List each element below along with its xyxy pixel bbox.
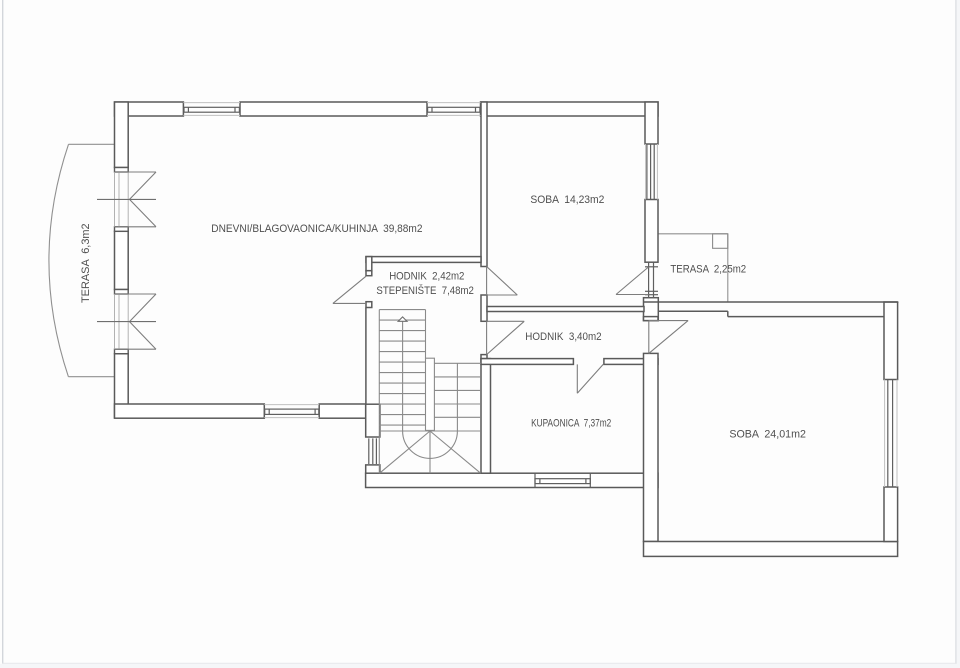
svg-text:KUPAONICA 7,37m2: KUPAONICA 7,37m2 [531, 417, 611, 429]
svg-text:HODNIK 2,42m2: HODNIK 2,42m2 [389, 270, 464, 282]
svg-text:TERASA 2,25m2: TERASA 2,25m2 [670, 263, 746, 275]
svg-text:HODNIK 3,40m2: HODNIK 3,40m2 [525, 331, 601, 343]
svg-text:SOBA 24,01m2: SOBA 24,01m2 [729, 428, 806, 440]
svg-text:DNEVNI/BLAGOVAONICA/KUHINJA 3: DNEVNI/BLAGOVAONICA/KUHINJA 39,88m2 [211, 223, 422, 235]
svg-text:TERASA 6,3m2: TERASA 6,3m2 [80, 223, 92, 303]
svg-text:STEPENIŠTE 7,48m2: STEPENIŠTE 7,48m2 [376, 284, 474, 297]
svg-text:SOBA 14,23m2: SOBA 14,23m2 [530, 194, 604, 206]
